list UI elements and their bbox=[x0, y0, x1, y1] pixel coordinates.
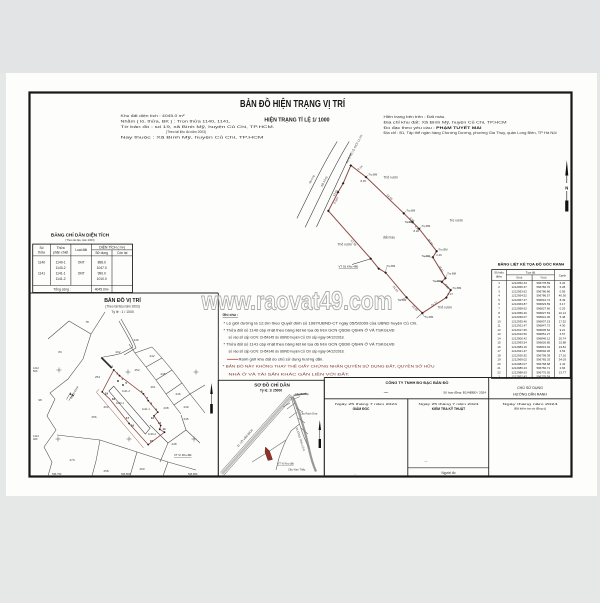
svg-text:596 850: 596 850 bbox=[188, 472, 198, 476]
svg-text:Trụ BM: Trụ BM bbox=[453, 286, 462, 290]
svg-text:Tỷ lệ: 1/ 25000: Tỷ lệ: 1/ 25000 bbox=[260, 389, 283, 393]
svg-text:400: 400 bbox=[33, 437, 38, 441]
svg-text:GIÁM ĐỐC: GIÁM ĐỐC bbox=[353, 406, 370, 411]
svg-text:Tọa độ: Tọa độ bbox=[526, 271, 536, 275]
svg-text:HIỆN TRẠNG TỈ LỆ 1/ 1000: HIỆN TRẠNG TỈ LỆ 1/ 1000 bbox=[264, 116, 329, 124]
svg-text:254: 254 bbox=[95, 375, 100, 379]
svg-text:Ghi chú :: Ghi chú : bbox=[223, 313, 239, 317]
svg-text:số vào sổ cấp GCN: CH54145 do: số vào sổ cấp GCN: CH54145 do UBND huyện… bbox=[229, 336, 345, 340]
svg-text:KIỂM TRA KỸ THUẬT: KIỂM TRA KỸ THUẬT bbox=[432, 406, 465, 411]
svg-text:990.0: 990.0 bbox=[98, 271, 106, 275]
svg-text:CÔNG TY TNHH ĐO ĐẠC BẢN ĐỒ: CÔNG TY TNHH ĐO ĐẠC BẢN ĐỒ bbox=[386, 380, 449, 385]
svg-text:1140-1: 1140-1 bbox=[56, 261, 66, 265]
svg-text:Trụ BM: Trụ BM bbox=[387, 264, 396, 268]
svg-text:261: 261 bbox=[150, 385, 155, 389]
svg-text:...: ... bbox=[354, 472, 357, 476]
svg-text:đất màu: đất màu bbox=[383, 236, 395, 240]
svg-text:258: 258 bbox=[103, 469, 108, 473]
svg-text:245: 245 bbox=[183, 417, 188, 421]
svg-text:Y(m): Y(m) bbox=[540, 276, 546, 280]
svg-text:202: 202 bbox=[115, 350, 120, 354]
svg-text:N: N bbox=[565, 186, 568, 191]
svg-text:Tổng cộng :: Tổng cộng : bbox=[53, 288, 70, 292]
svg-text:83: 83 bbox=[58, 350, 62, 354]
svg-text:Đo đạc theo yêu cầu : PHẠM TU: Đo đạc theo yêu cầu : PHẠM TUYẾT MAI bbox=[384, 125, 482, 130]
svg-text:Hiện trạng bên trên : Đất màu: Hiện trạng bên trên : Đất màu. bbox=[384, 114, 446, 119]
svg-text:điểm: điểm bbox=[496, 275, 503, 279]
svg-text:2.49: 2.49 bbox=[436, 253, 442, 257]
svg-text:596 800: 596 800 bbox=[121, 472, 131, 476]
svg-text:Nay thuộc : Xã Bình Mỹ, huyệ: Nay thuộc : Xã Bình Mỹ, huyện Củ Chi, TP… bbox=[121, 134, 264, 139]
svg-text:* Thửa đất số 1141 cập nhật th: * Thửa đất số 1141 cập nhật theo bảng li… bbox=[224, 342, 396, 347]
svg-text:248: 248 bbox=[171, 442, 176, 446]
svg-text:VT 91 KNc 480: VT 91 KNc 480 bbox=[339, 265, 359, 269]
svg-text:BẢN ĐỒ VỊ TRÍ: BẢN ĐỒ VỊ TRÍ bbox=[104, 296, 141, 304]
svg-text:Ngày tháng năm 202: Ngày tháng năm 2024 bbox=[503, 402, 558, 406]
svg-text:Số hợp đồng: Ð1/HĐĐĐ / 2024: Số hợp đồng: Ð1/HĐĐĐ / 2024 bbox=[443, 391, 486, 395]
svg-text:Trụ BM: Trụ BM bbox=[425, 315, 434, 319]
svg-text:252: 252 bbox=[134, 368, 139, 372]
svg-text:Người đo: Người đo bbox=[442, 471, 456, 475]
svg-text:thửa: thửa bbox=[38, 250, 45, 254]
svg-text:240: 240 bbox=[133, 338, 138, 342]
svg-text:1140: 1140 bbox=[38, 261, 45, 265]
svg-text:8.45: 8.45 bbox=[361, 179, 367, 183]
svg-text:Thổ vườn: Thổ vườn bbox=[438, 306, 453, 310]
svg-text:Cầu Bà Bếp: Cầu Bà Bếp bbox=[295, 392, 310, 396]
svg-text:Loại đất: Loại đất bbox=[75, 248, 87, 252]
svg-text:Sử dụng: Sử dụng bbox=[95, 251, 108, 255]
svg-text:78: 78 bbox=[85, 320, 89, 324]
svg-text:Cạnh: Cạnh bbox=[559, 273, 567, 277]
svg-text:DIỆN TÍCH ( m²): DIỆN TÍCH ( m²) bbox=[99, 244, 125, 249]
svg-text:Tre vườn: Tre vườn bbox=[450, 219, 464, 223]
svg-text:Trụ BM: Trụ BM bbox=[422, 224, 431, 228]
svg-text:1140-2: 1140-2 bbox=[56, 266, 66, 270]
svg-text:BẢNG LIỆT KÊ TỌA ĐỘ GÓC RANH: BẢNG LIỆT KÊ TỌA ĐỘ GÓC RANH bbox=[498, 261, 565, 266]
svg-text:1140-1: 1140-1 bbox=[116, 401, 124, 405]
svg-text:1141-2: 1141-2 bbox=[122, 389, 130, 393]
svg-text:Trụ BM: Trụ BM bbox=[422, 254, 431, 258]
svg-text:Cầu Rạch Dừa: Cầu Rạch Dừa bbox=[300, 412, 318, 416]
svg-text:1141-1: 1141-1 bbox=[142, 407, 150, 411]
svg-text:Địa chỉ khu đất: Xã Bình Mỹ, h: Địa chỉ khu đất: Xã Bình Mỹ, huyện Củ Ch… bbox=[384, 119, 507, 124]
svg-text:Tỷ lệ : 1 / 1000: Tỷ lệ : 1 / 1000 bbox=[111, 310, 134, 314]
svg-text:Trụ BM: Trụ BM bbox=[439, 247, 448, 251]
svg-text:ONT: ONT bbox=[78, 261, 85, 265]
svg-text:----: ---- bbox=[384, 390, 389, 394]
svg-text:Khu đất diện tích : 4045.0 m: Khu đất diện tích : 4045.0 m² bbox=[121, 113, 186, 118]
svg-text:Thổ vườn: Thổ vườn bbox=[384, 176, 399, 180]
svg-text:Cầu Vàm Thầy: Cầu Vàm Thầy bbox=[288, 468, 306, 472]
svg-text:BẢNG CHỈ DẪN DIỆN TÍCH: BẢNG CHỈ DẪN DIỆN TÍCH bbox=[51, 231, 110, 238]
svg-text:(Theo tài liệu đo năm 2003): (Theo tài liệu đo năm 2003) bbox=[166, 129, 207, 134]
svg-text:260: 260 bbox=[139, 467, 144, 471]
svg-text:HƯỚNG DẪN RANH: HƯỚNG DẪN RANH bbox=[513, 392, 547, 397]
svg-text:NHÀ Ở VÀ TÀI SẢN KHÁC GẮN LIỀN: NHÀ Ở VÀ TÀI SẢN KHÁC GẮN LIỀN VỚI ĐẤT. bbox=[229, 372, 350, 377]
svg-text:1010.0: 1010.0 bbox=[97, 277, 107, 281]
svg-text:200: 200 bbox=[103, 405, 108, 409]
svg-text:Trụ BM: Trụ BM bbox=[398, 298, 407, 302]
svg-text:* BẢN ĐỒ NÀY KHÔNG THAY THẾ G: * BẢN ĐỒ NÀY KHÔNG THAY THẾ GIẤY CHỨNG N… bbox=[223, 364, 435, 369]
svg-text:(Đã kiểm tra và đồng ý): (Đã kiểm tra và đồng ý) bbox=[514, 407, 546, 411]
svg-text:---: --- bbox=[424, 459, 427, 463]
svg-text:SƠ ĐỒ CHỈ DẪN: SƠ ĐỒ CHỈ DẪN bbox=[254, 382, 290, 388]
svg-text:500: 500 bbox=[33, 369, 38, 373]
svg-text:Ngày 25 tháng 7 nă: Ngày 25 tháng 7 năm 2024 bbox=[335, 402, 397, 406]
svg-text:X(m): X(m) bbox=[516, 276, 522, 280]
svg-text:Ranh giới khu đất do chủ sử dụ: Ranh giới khu đất do chủ sử dụng hướng d… bbox=[239, 357, 324, 362]
svg-text:238: 238 bbox=[163, 406, 168, 410]
svg-text:6.27: 6.27 bbox=[448, 292, 454, 296]
svg-text:1141: 1141 bbox=[38, 271, 45, 275]
svg-text:Thổ vườn: Thổ vườn bbox=[338, 243, 353, 247]
svg-text:Địa chỉ : B1, Tập thể ngân hà: Địa chỉ : B1, Tập thể ngân hàng Chương D… bbox=[384, 130, 557, 135]
svg-text:1140-2: 1140-2 bbox=[148, 432, 156, 436]
svg-text:Nhằm ( lô, thửa, BK ) : Trọn: Nhằm ( lô, thửa, BK ) : Trọn thửa 1140, … bbox=[121, 119, 231, 124]
svg-text:Thửa: Thửa bbox=[57, 246, 65, 250]
svg-text:CHỦ SỬ DỤNG: CHỦ SỬ DỤNG bbox=[517, 385, 543, 390]
svg-text:VT VI Khu đất: VT VI Khu đất bbox=[174, 453, 192, 457]
svg-text:245: 245 bbox=[160, 372, 165, 376]
svg-text:1141-1: 1141-1 bbox=[56, 271, 66, 275]
svg-text:Trụ BM: Trụ BM bbox=[407, 209, 416, 213]
svg-text:www.raovat49.com: www.raovat49.com bbox=[201, 286, 393, 316]
svg-text:98: 98 bbox=[38, 398, 42, 402]
svg-text:(Theo tài liệu năm 2003): (Theo tài liệu năm 2003) bbox=[105, 305, 140, 309]
svg-text:Trụ BM: Trụ BM bbox=[433, 279, 442, 283]
svg-text:898.0: 898.0 bbox=[98, 261, 106, 265]
svg-text:Số: Số bbox=[39, 246, 43, 250]
svg-text:Ngày 25 tháng 7 nă: Ngày 25 tháng 7 năm 2024 bbox=[419, 402, 479, 406]
svg-text:* Thửa đất số 1140 cập nhật th: * Thửa đất số 1140 cập nhật theo bảng li… bbox=[224, 328, 396, 333]
svg-text:BẢN ĐỒ HIỆN TRẠNG VỊ TRÍ: BẢN ĐỒ HIỆN TRẠNG VỊ TRÍ bbox=[240, 97, 346, 110]
svg-text:8.20: 8.20 bbox=[414, 229, 420, 233]
svg-text:VT VI Khu đất: VT VI Khu đất bbox=[278, 462, 294, 466]
svg-text:4045.0m²: 4045.0m² bbox=[95, 288, 110, 292]
svg-text:Còn lại: Còn lại bbox=[117, 251, 128, 255]
svg-text:phân chiết: phân chiết bbox=[53, 250, 68, 254]
svg-text:596 750: 596 750 bbox=[52, 472, 62, 476]
svg-text:1141-2: 1141-2 bbox=[56, 277, 66, 281]
svg-text:Trụ BM: Trụ BM bbox=[369, 173, 378, 177]
svg-text:Tờ bản đồ : số 19, xã Bình M: Tờ bản đồ : số 19, xã Bình Mỹ, huyện Củ … bbox=[121, 124, 275, 129]
svg-text:246: 246 bbox=[175, 392, 180, 396]
svg-text:(Theo tài liệu năm 2003): (Theo tài liệu năm 2003) bbox=[65, 238, 94, 242]
svg-text:1047.0: 1047.0 bbox=[97, 266, 107, 270]
svg-text:* Lộ giới đường là 12.0m theo: * Lộ giới đường là 12.0m theo Quyết định… bbox=[224, 322, 418, 326]
svg-text:242: 242 bbox=[149, 354, 154, 358]
svg-text:số vào sổ cấp GCN: CH54146 do: số vào sổ cấp GCN: CH54146 do UBND huyện… bbox=[229, 350, 345, 354]
svg-text:Trụ BM: Trụ BM bbox=[447, 272, 456, 276]
svg-text:256: 256 bbox=[91, 415, 96, 419]
svg-text:ONT: ONT bbox=[78, 271, 85, 275]
svg-text:270: 270 bbox=[69, 458, 74, 462]
svg-text:249: 249 bbox=[183, 405, 188, 409]
